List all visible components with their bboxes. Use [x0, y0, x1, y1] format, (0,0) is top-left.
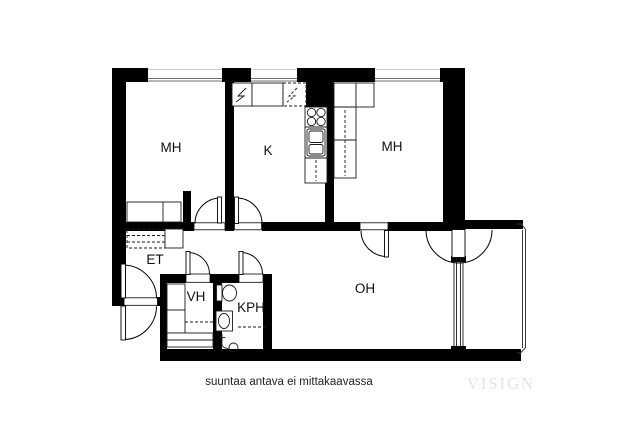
door-bedroom-left — [194, 197, 225, 230]
room-label-kitchen: K — [263, 143, 272, 158]
door-closet — [186, 252, 210, 283]
kitchen-counter-top — [252, 83, 283, 106]
closet-bedroom-right — [334, 83, 374, 178]
wall-right — [443, 68, 465, 229]
window-bedroom-right — [375, 70, 440, 82]
wardrobe-bedroom-left — [127, 202, 181, 222]
watermark: VISIGN — [467, 374, 535, 393]
wall-kitchen-corner-block — [306, 82, 334, 107]
wall-entry-bottom-2 — [157, 297, 167, 306]
washbasin-icon — [216, 311, 233, 331]
wall-block-top-2 — [210, 274, 239, 283]
wall-block-left — [160, 274, 167, 361]
room-label-entry-hall: ET — [146, 252, 163, 267]
door-bedroom-right — [360, 223, 389, 257]
wall-balcony-top — [465, 220, 523, 229]
room-label-bedroom-right: MH — [382, 139, 403, 154]
toilet-icon — [217, 285, 237, 301]
wall-window-stub-bottom — [451, 346, 466, 354]
closet-entry-hall — [127, 229, 183, 248]
room-label-bedroom-left: MH — [161, 140, 182, 155]
room-label-closet: VH — [187, 289, 206, 304]
wall-top-3 — [297, 68, 375, 82]
floor-plan-page: MH K MH ET VH KPH OH suuntaa antava ei m… — [0, 0, 640, 427]
wall-top-2 — [222, 68, 251, 82]
wall-bottom — [160, 349, 521, 361]
floor-plan: MH K MH ET VH KPH OH suuntaa antava ei m… — [0, 0, 640, 427]
freezer-overhead-icon — [283, 83, 306, 106]
door-entrance — [121, 264, 158, 340]
fridge-icon — [232, 83, 252, 106]
wall-hall-2 — [262, 222, 360, 231]
wall-block-top-1 — [160, 274, 186, 283]
sink-icon — [307, 129, 325, 156]
window-living-room — [454, 258, 463, 346]
room-label-living-room: OH — [355, 281, 375, 296]
room-label-bathroom: KPH — [237, 300, 265, 315]
window-kitchen — [251, 70, 297, 82]
door-bathroom — [239, 252, 263, 283]
balcony-railing — [517, 224, 526, 353]
window-bedroom-left — [148, 70, 222, 82]
disclaimer-text: suuntaa antava ei mittakaavassa — [205, 376, 373, 388]
door-kitchen — [235, 197, 263, 230]
